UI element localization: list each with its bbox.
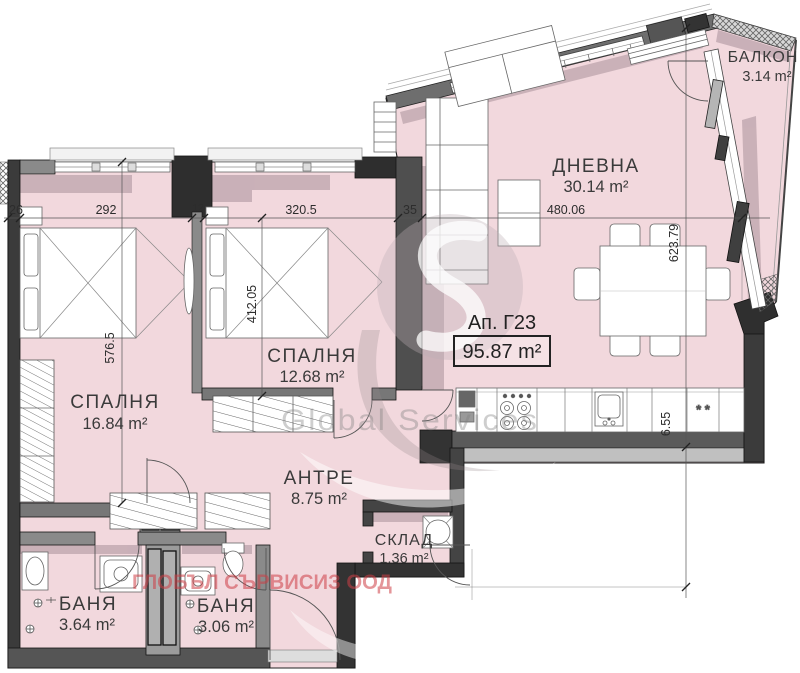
window-sill (50, 148, 174, 160)
room-label-balcony: БАЛКОН (728, 49, 799, 66)
bedroom2-window (215, 162, 355, 172)
dim-living-depth: 623.79 (667, 224, 681, 262)
room-area-hallway: 8.75 m² (291, 490, 347, 508)
dim-left-wall: 26 (9, 203, 23, 217)
watermark-cyrillic: ГЛОБЪЛ СЪРВИСИЗ ООД (132, 571, 392, 594)
dim-kitchen-segment: 6.55 (659, 412, 673, 436)
room-area-bedroom2: 12.68 m² (279, 368, 345, 386)
chair-icon (704, 268, 730, 300)
floor-plan-canvas: * * (0, 0, 800, 673)
apartment-area: 95.87 m² (463, 341, 542, 363)
window-sill (208, 148, 362, 160)
wardrobe-icon (20, 360, 54, 502)
dim-bedroom2-width: 320.5 (285, 203, 316, 217)
room-label-storage: СКЛАД (375, 532, 433, 549)
sink-icon (595, 392, 623, 426)
radiator-icon (184, 248, 194, 314)
room-area-balcony: 3.14 m² (742, 69, 791, 85)
chair-icon (574, 268, 600, 300)
wardrobe-icon (110, 493, 197, 529)
room-label-bathroom2: БАНЯ (197, 596, 255, 617)
dim-living-width: 480.06 (547, 203, 585, 217)
room-label-living: ДНЕВНА (552, 156, 639, 177)
bathroom-sink-icon (22, 552, 48, 590)
dim-bedroom1-depth: 576.5 (103, 332, 117, 363)
dim-bedroom2-depth: 412.05 (245, 285, 259, 323)
dim-bedroom1-width: 292 (96, 203, 117, 217)
room-area-living: 30.14 m² (563, 178, 629, 196)
bedroom1-window (55, 162, 170, 172)
radiator-icon (374, 102, 396, 152)
dim-living-wall: 35 (403, 203, 417, 217)
dim-partition: 12 (192, 202, 204, 214)
room-area-bathroom2: 3.06 m² (198, 618, 254, 636)
watermark-latin: Global Services (281, 404, 539, 437)
installation-shaft (148, 549, 161, 645)
room-area-bedroom1: 16.84 m² (82, 415, 148, 433)
room-label-bedroom1: СПАЛНЯ (70, 392, 159, 413)
room-area-bathroom1: 3.64 m² (59, 616, 115, 634)
room-label-bathroom1: БАНЯ (59, 594, 117, 615)
wardrobe-icon (205, 493, 270, 529)
room-area-storage: 1.36 m² (379, 551, 428, 567)
room-label-bedroom2: СПАЛНЯ (267, 346, 356, 367)
room-label-hallway: АНТРЕ (284, 468, 355, 489)
installation-shaft (163, 551, 176, 645)
floor-plan-page: * * (0, 0, 800, 673)
entrance-threshold (268, 650, 337, 662)
apartment-id: Ап. Г23 95.87 m² (454, 312, 550, 366)
apartment-number: Ап. Г23 (468, 312, 536, 334)
fridge-icon: * * (696, 402, 711, 417)
insulation-strip (0, 162, 8, 204)
